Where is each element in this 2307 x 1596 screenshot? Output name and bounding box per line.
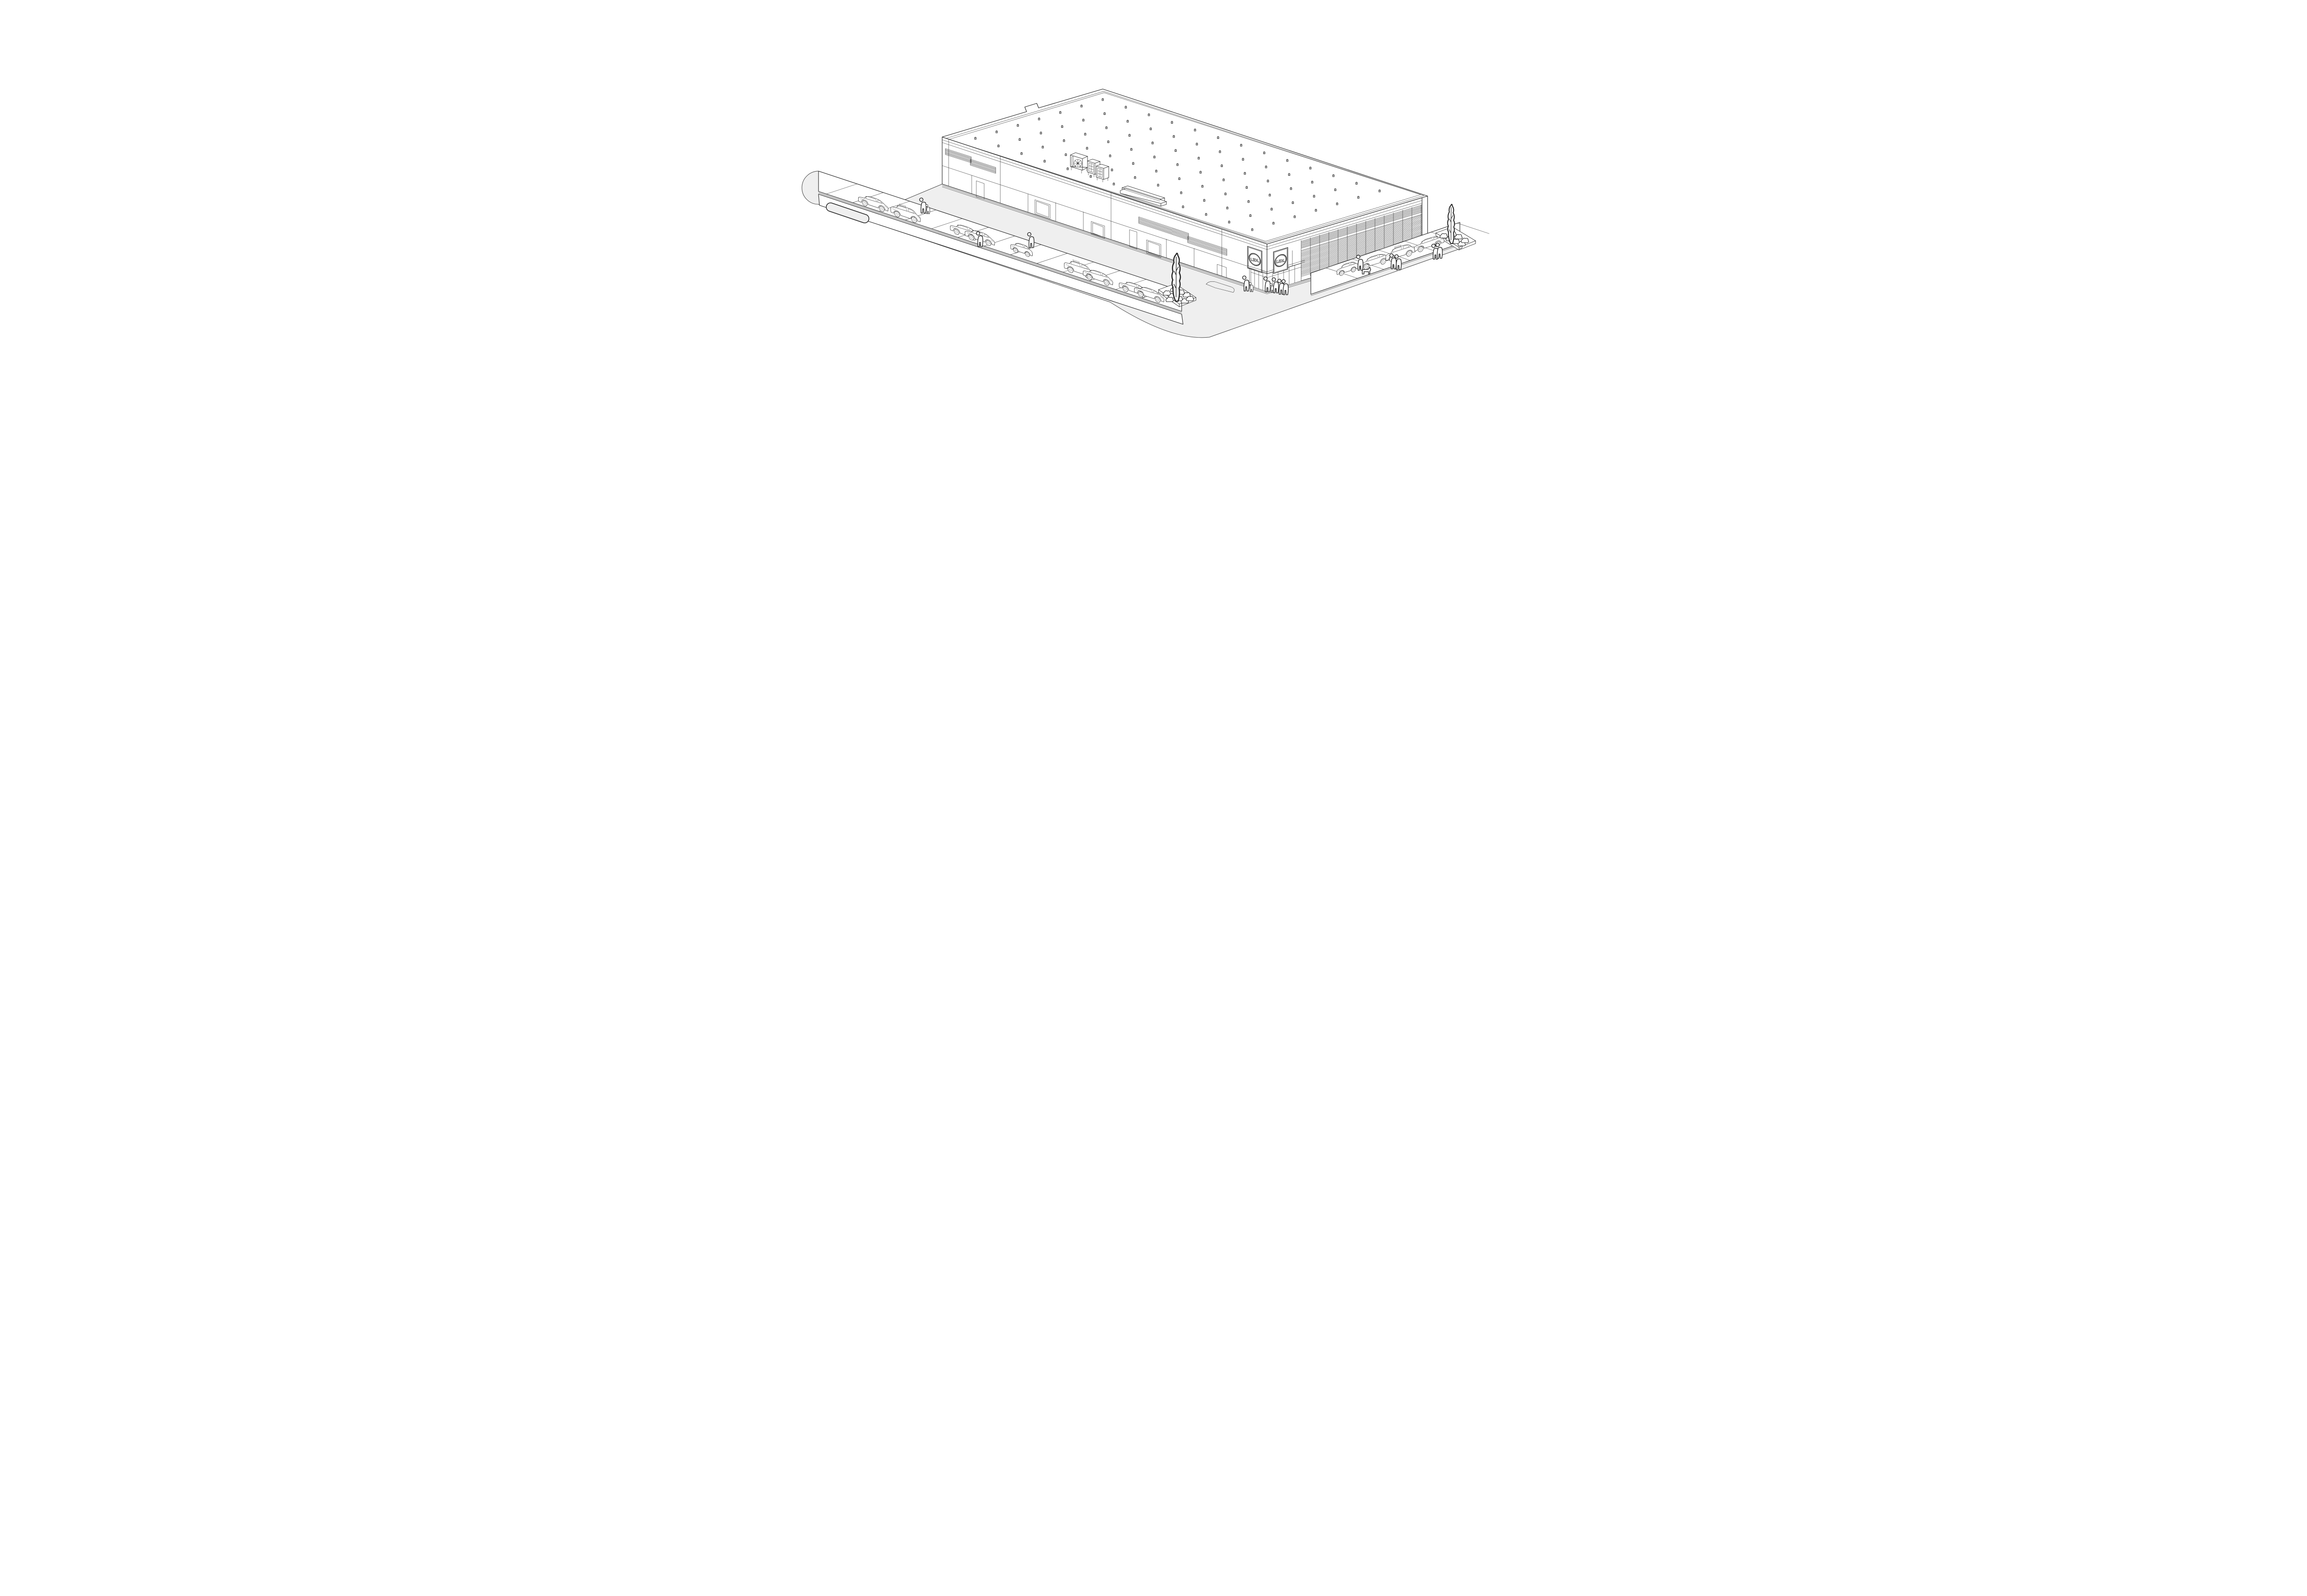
stall-line: [1458, 223, 1489, 234]
roof-fastener-dot: [1269, 194, 1270, 196]
roof-fastener-dot: [1084, 133, 1086, 135]
roof-fastener-dot: [996, 131, 997, 133]
roof-fastener-dot: [1203, 199, 1205, 202]
roof-fastener-dot: [1155, 170, 1157, 172]
roof-fastener-dot: [1130, 148, 1132, 150]
site-illustration: LiDL LiDL: [792, 0, 1515, 463]
roof-fastener-dot: [1017, 124, 1018, 126]
roof-fastener-dot: [1221, 165, 1222, 167]
roof-fastener-dot: [1132, 162, 1134, 165]
roof-fastener-dot: [1242, 158, 1243, 161]
roof-fastener-dot: [1102, 98, 1103, 101]
roof-fastener-dot: [1198, 157, 1199, 159]
roof-fastener-dot: [1294, 215, 1295, 218]
roof-fastener-dot: [1200, 171, 1201, 173]
tree-cypress: [1447, 204, 1454, 244]
roof-fastener-dot: [1379, 190, 1380, 192]
roof-fastener-dot: [1104, 113, 1105, 115]
roof-fastener-dot: [1292, 202, 1293, 204]
roof-fastener-dot: [998, 145, 999, 147]
roof-fastener-dot: [1125, 106, 1126, 108]
roof-fastener-dot: [1249, 214, 1251, 217]
roof-fastener-dot: [1134, 176, 1136, 179]
roof-fastener-dot: [1107, 141, 1109, 143]
roof-fastener-dot: [1150, 128, 1151, 130]
roof-fastener-dot: [1251, 228, 1253, 231]
roof-fastener-dot: [1217, 137, 1219, 139]
roof-fastener-dot: [1205, 213, 1207, 215]
roof-fastener-dot: [1290, 187, 1291, 190]
roof-fastener-dot: [1129, 134, 1130, 137]
roof-fastener-dot: [1336, 202, 1338, 205]
roof-fastener-dot: [1038, 118, 1040, 120]
roof-fastener-dot: [1357, 196, 1359, 198]
roof-fastener-dot: [1040, 132, 1041, 134]
roof-fastener-dot: [1090, 175, 1091, 178]
roof-fastener-dot: [1021, 152, 1022, 155]
roof-fastener-dot: [1223, 179, 1224, 181]
roof-fastener-dot: [974, 137, 976, 139]
roof-fastener-dot: [1225, 193, 1226, 195]
roof-fastener-dot: [1334, 189, 1336, 191]
roof-fastener-dot: [1082, 119, 1084, 121]
roof-fastener-dot: [1248, 200, 1249, 202]
roof-fastener-dot: [1111, 169, 1112, 171]
roof-fastener-dot: [1313, 195, 1315, 197]
roof-fastener-dot: [1333, 174, 1334, 177]
roof-fastener-dot: [1288, 173, 1290, 176]
roof-fastener-dot: [1263, 152, 1265, 154]
roof-fastener-dot: [1152, 142, 1153, 144]
roof-fastener-dot: [1228, 221, 1230, 223]
roof-fastener-dot: [1180, 191, 1182, 194]
lidl-sign-front: LiDL: [1248, 246, 1262, 273]
roof-fastener-dot: [1240, 144, 1242, 146]
roof-fastener-dot: [1171, 121, 1172, 124]
roof-fastener-dot: [1246, 186, 1247, 189]
roof-fastener-dot: [1311, 181, 1313, 183]
roof-fastener-dot: [1063, 139, 1064, 142]
roof-fastener-dot: [1273, 222, 1274, 224]
roof-fastener-dot: [1081, 105, 1082, 107]
roof-fastener-dot: [1175, 149, 1176, 152]
illustration-stage: LiDL LiDL: [792, 0, 1515, 463]
roof-fastener-dot: [1061, 125, 1063, 128]
roof-fastener-dot: [1178, 178, 1180, 180]
roof-fastener-dot: [1309, 167, 1311, 169]
roof-fastener-dot: [1113, 183, 1114, 185]
roof-fastener-dot: [1226, 207, 1228, 209]
roof-fastener-dot: [1196, 143, 1197, 145]
roof-fastener-dot: [1148, 113, 1149, 116]
roof-fastener-dot: [1219, 150, 1220, 153]
roof-fastener-dot: [1194, 129, 1195, 131]
roof-fastener-dot: [1201, 185, 1203, 187]
roof-fastener-dot: [1109, 155, 1111, 157]
roof-fastener-dot: [1019, 138, 1020, 141]
roof-fastener-dot: [1173, 135, 1174, 137]
roof-fastener-dot: [1086, 147, 1088, 149]
roof-fastener-dot: [1244, 172, 1245, 174]
roof-fastener-dot: [1067, 167, 1068, 170]
roof-fastener-dot: [1267, 180, 1268, 182]
roof-fastener-dot: [1059, 111, 1061, 113]
roof-fastener-dot: [1182, 206, 1183, 208]
roof-fastener-dot: [1042, 146, 1043, 148]
roof-fastener-dot: [1157, 184, 1159, 186]
roof-fastener-dot: [1356, 182, 1357, 185]
roof-fastener-dot: [1127, 120, 1128, 122]
roof-fastener-dot: [1265, 166, 1267, 168]
lidl-sign-side: LiDL: [1273, 248, 1288, 274]
roof-fastener-dot: [1177, 163, 1178, 166]
roof-fastener-dot: [1106, 126, 1107, 129]
roof-fastener-dot: [1044, 160, 1045, 162]
roof-fastener-dot: [1315, 209, 1316, 211]
roof-fastener-dot: [1153, 156, 1155, 158]
roof-fastener-dot: [1065, 154, 1066, 156]
roof-fastener-dot: [1286, 159, 1288, 161]
roof-fastener-dot: [1271, 208, 1272, 210]
